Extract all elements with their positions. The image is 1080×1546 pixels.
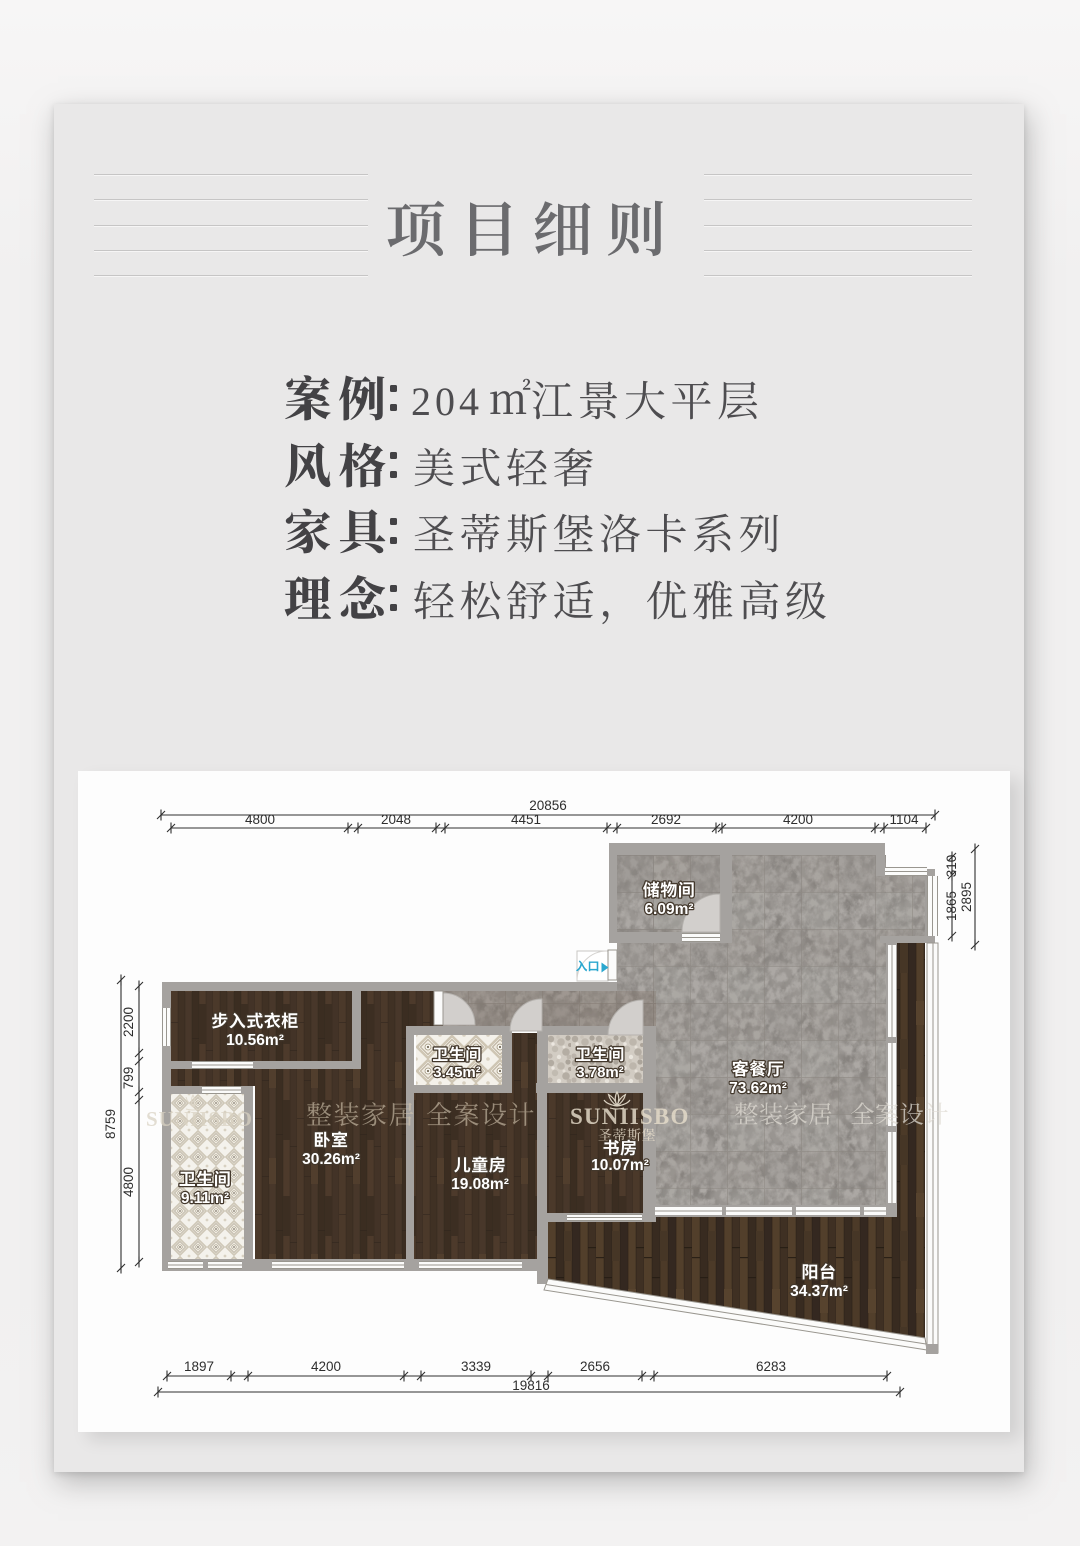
svg-text:4200: 4200 [311,1359,341,1374]
svg-text:4451: 4451 [511,812,541,827]
svg-text:4200: 4200 [783,812,813,827]
svg-text:3339: 3339 [461,1359,491,1374]
svg-text:SUNIISBO: SUNIISBO [570,1104,690,1129]
svg-text:3.45m²: 3.45m² [433,1064,481,1081]
svg-text:4800: 4800 [245,812,275,827]
svg-text:73.62m²: 73.62m² [729,1080,787,1097]
svg-text:10.07m²: 10.07m² [591,1157,649,1174]
svg-text:SUNIISBO: SUNIISBO [146,1107,253,1131]
svg-text:30.26m²: 30.26m² [302,1151,360,1168]
svg-text:1104: 1104 [889,812,919,827]
svg-text:2895: 2895 [959,882,974,912]
svg-text:2200: 2200 [121,1007,136,1037]
svg-text:1897: 1897 [184,1359,214,1374]
svg-text:2656: 2656 [580,1359,610,1374]
svg-text:310: 310 [944,855,959,878]
svg-text:2692: 2692 [651,812,681,827]
svg-text:6.09m²: 6.09m² [644,901,693,918]
svg-text:6283: 6283 [756,1359,786,1374]
svg-text:4800: 4800 [121,1167,136,1197]
svg-text:10.56m²: 10.56m² [226,1032,284,1049]
svg-text:204: 204 [411,379,483,424]
svg-text:2048: 2048 [381,812,411,827]
svg-text:19.08m²: 19.08m² [451,1176,509,1193]
svg-text:20856: 20856 [529,798,567,813]
svg-text:8759: 8759 [103,1109,118,1139]
svg-text:9.11m²: 9.11m² [181,1190,229,1207]
svg-text:34.37m²: 34.37m² [790,1283,848,1300]
svg-text:799: 799 [121,1067,136,1090]
svg-text:3.78m²: 3.78m² [576,1064,624,1081]
svg-text:19816: 19816 [512,1378,550,1393]
svg-text:1865: 1865 [944,891,959,921]
